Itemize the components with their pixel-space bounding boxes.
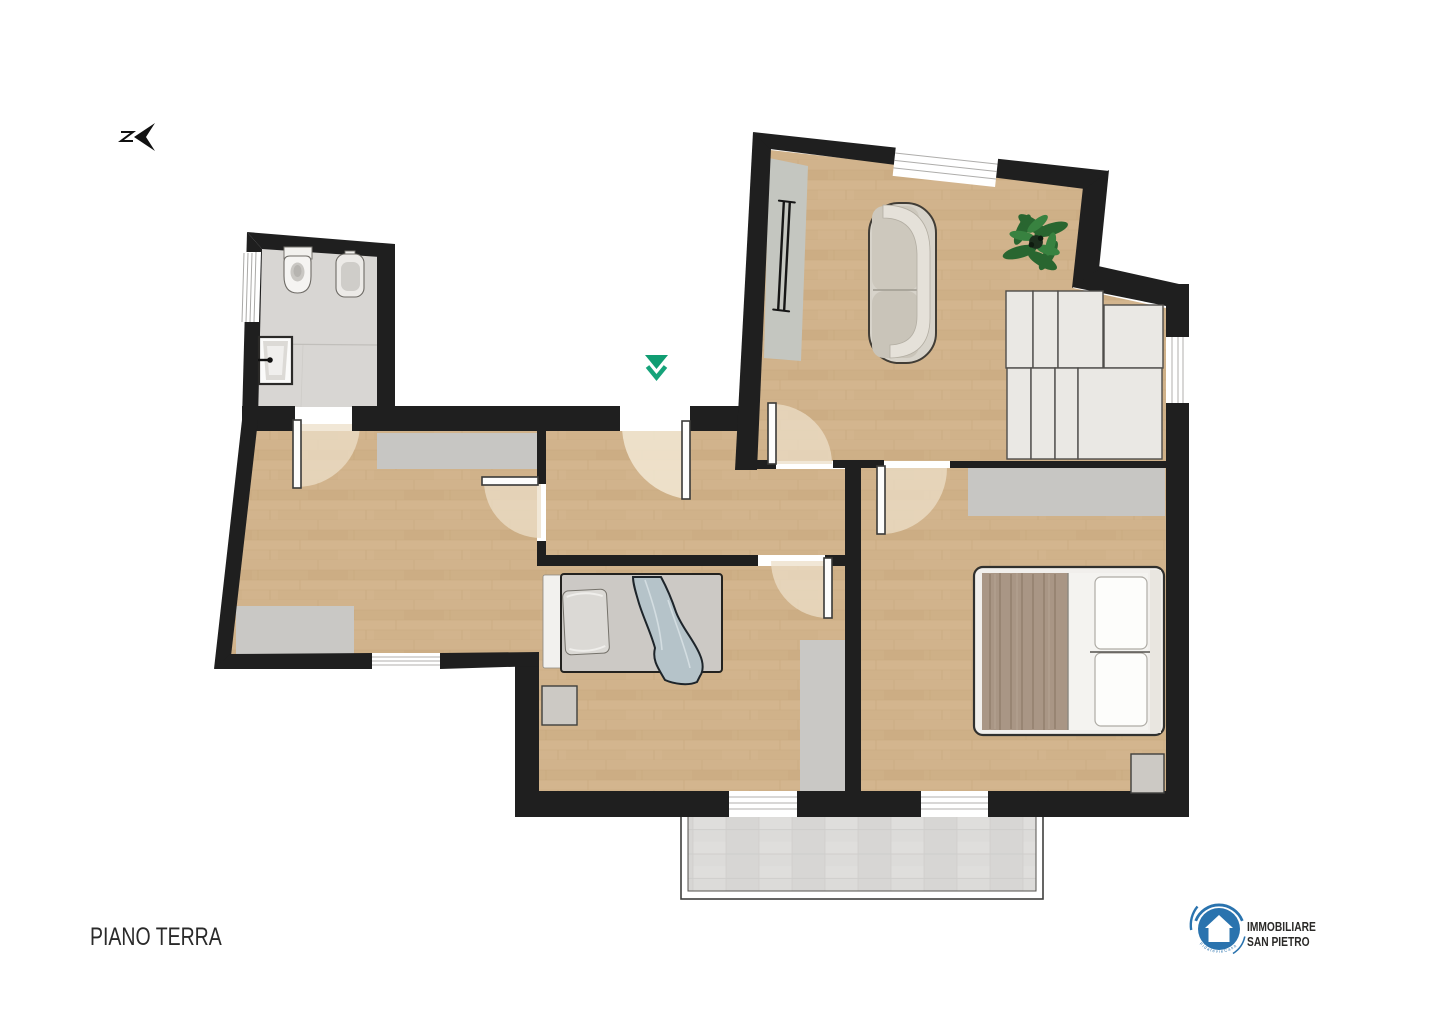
svg-text:SAN PIETRO: SAN PIETRO (1247, 936, 1310, 949)
svg-text:PIANO TERRA: PIANO TERRA (90, 923, 222, 951)
svg-text:IMMOBILIARE: IMMOBILIARE (1247, 921, 1316, 934)
